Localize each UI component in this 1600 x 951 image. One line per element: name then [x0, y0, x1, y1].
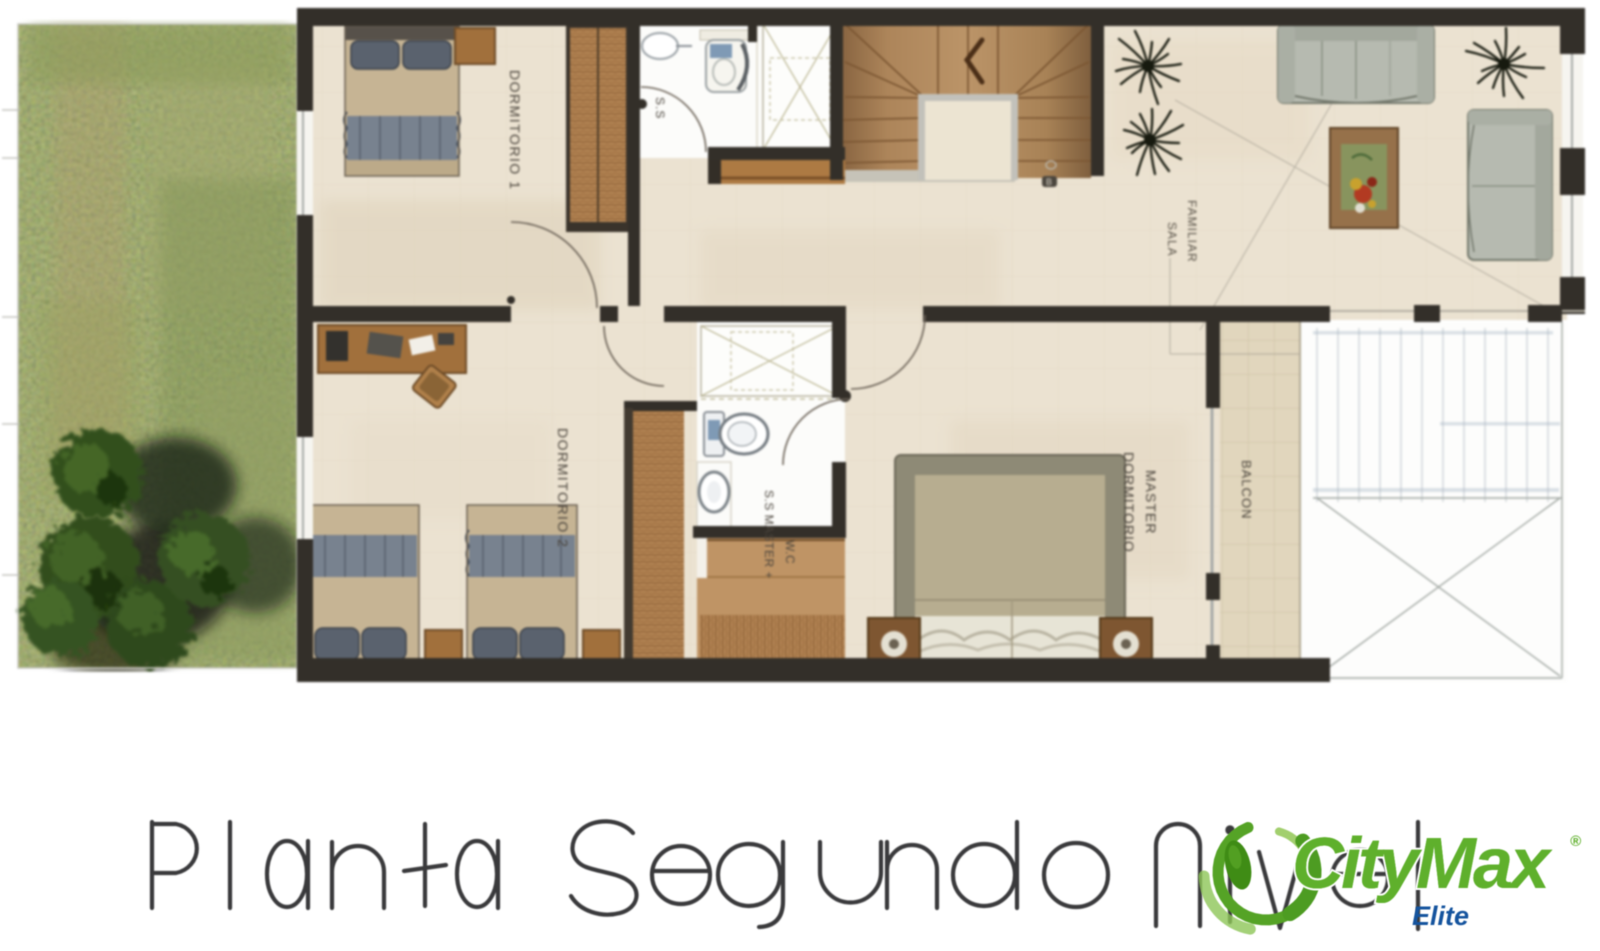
- svg-text:MASTER: MASTER: [1143, 470, 1159, 534]
- svg-text:B: B: [1046, 177, 1052, 187]
- svg-text:FAMILIAR: FAMILIAR: [1185, 200, 1199, 263]
- svg-text:W.C: W.C: [783, 540, 797, 564]
- svg-text:SALA: SALA: [1165, 222, 1179, 257]
- svg-text:S.S MASTER +: S.S MASTER +: [762, 490, 776, 579]
- svg-text:®: ®: [1570, 833, 1582, 850]
- svg-text:S.S: S.S: [653, 97, 667, 119]
- svg-text:CityMax: CityMax: [1292, 824, 1553, 904]
- svg-text:BALCON: BALCON: [1239, 460, 1254, 519]
- svg-text:DORMITORIO 1: DORMITORIO 1: [507, 70, 523, 190]
- svg-text:DORMITORIO 2: DORMITORIO 2: [555, 428, 571, 548]
- svg-text:DORMITORIO: DORMITORIO: [1121, 452, 1137, 553]
- svg-text:Elite: Elite: [1412, 901, 1469, 931]
